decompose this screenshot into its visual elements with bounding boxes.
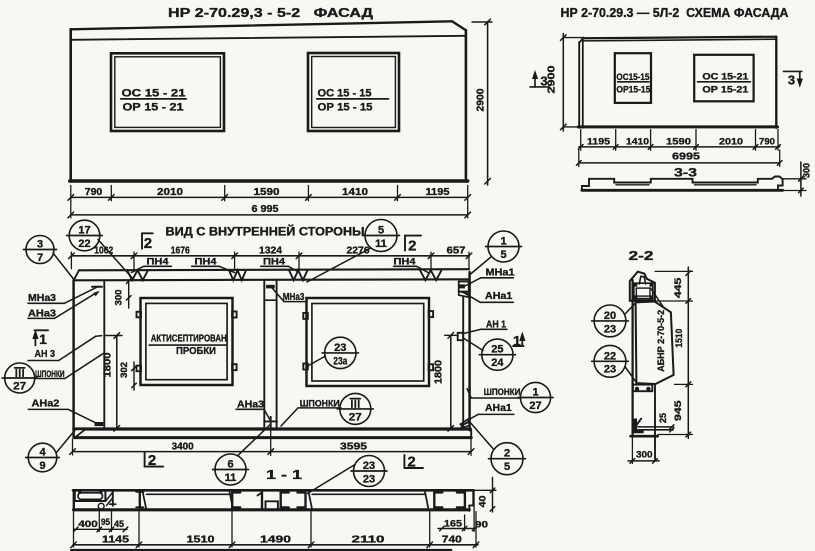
svg-text:1410: 1410 — [626, 136, 649, 147]
svg-text:1324: 1324 — [259, 245, 282, 256]
svg-text:АНа1: АНа1 — [485, 403, 512, 414]
svg-text:2: 2 — [148, 452, 156, 469]
svg-text:ОС 15 - 15: ОС 15 - 15 — [318, 88, 372, 100]
svg-text:1195: 1195 — [426, 187, 450, 198]
svg-text:302: 302 — [119, 362, 130, 378]
svg-text:3: 3 — [37, 239, 43, 251]
svg-text:ШПОНКИ: ШПОНКИ — [35, 369, 65, 379]
svg-text:790: 790 — [759, 136, 775, 147]
svg-text:23а: 23а — [333, 355, 348, 367]
svg-text:22: 22 — [78, 238, 90, 250]
svg-text:2900: 2900 — [476, 88, 487, 111]
svg-text:3400: 3400 — [172, 441, 194, 452]
svg-text:740: 740 — [442, 535, 463, 546]
svg-text:2: 2 — [408, 238, 416, 255]
svg-text:1: 1 — [532, 387, 538, 399]
svg-text:40: 40 — [478, 496, 488, 508]
svg-text:1: 1 — [39, 331, 47, 347]
svg-text:27: 27 — [529, 400, 541, 412]
svg-text:6: 6 — [227, 459, 233, 471]
svg-text:2110: 2110 — [352, 535, 386, 546]
svg-text:790: 790 — [85, 187, 103, 198]
svg-text:1800: 1800 — [433, 360, 444, 384]
svg-text:27: 27 — [349, 411, 362, 423]
svg-text:11: 11 — [375, 238, 387, 250]
svg-text:3595: 3595 — [340, 441, 368, 452]
svg-text:ПРОБКИ: ПРОБКИ — [176, 346, 216, 357]
svg-text:6995: 6995 — [672, 152, 701, 163]
svg-text:1490: 1490 — [260, 535, 292, 546]
svg-text:5: 5 — [500, 249, 506, 261]
svg-text:АКТИСЕПТИРОВАН: АКТИСЕПТИРОВАН — [151, 334, 227, 345]
svg-text:ОС15-15: ОС15-15 — [616, 72, 649, 82]
svg-text:20: 20 — [604, 310, 616, 322]
svg-text:ШПОНКИ: ШПОНКИ — [484, 387, 521, 397]
svg-text:3-3: 3-3 — [674, 166, 697, 180]
svg-text:МНа3: МНа3 — [28, 293, 56, 304]
svg-text:23: 23 — [604, 323, 616, 335]
svg-text:945: 945 — [673, 400, 684, 421]
svg-text:ВИД С ВНУТРЕННЕЙ СТОРОНЫ: ВИД С ВНУТРЕННЕЙ СТОРОНЫ — [166, 226, 365, 239]
svg-text:23: 23 — [604, 364, 616, 376]
svg-text:АБНР 2-70-5-2: АБНР 2-70-5-2 — [656, 310, 666, 372]
svg-text:2: 2 — [407, 454, 415, 471]
svg-text:2010: 2010 — [157, 187, 184, 198]
svg-text:95: 95 — [101, 517, 111, 528]
svg-text:23: 23 — [363, 473, 375, 485]
svg-text:2900: 2900 — [547, 65, 558, 94]
svg-text:АН 3: АН 3 — [35, 349, 56, 360]
svg-text:22: 22 — [604, 350, 616, 362]
svg-text:1800: 1800 — [103, 352, 114, 377]
svg-text:23: 23 — [334, 342, 346, 354]
svg-text:25: 25 — [491, 344, 503, 356]
svg-text:ОР 15 - 15: ОР 15 - 15 — [318, 102, 373, 114]
svg-text:400: 400 — [78, 519, 98, 530]
svg-text:45: 45 — [114, 519, 125, 530]
svg-text:2: 2 — [144, 235, 152, 252]
svg-text:АНа2: АНа2 — [32, 399, 60, 410]
svg-text:1510: 1510 — [187, 535, 216, 546]
svg-text:1590: 1590 — [254, 187, 281, 198]
svg-text:3: 3 — [788, 73, 795, 88]
svg-text:4: 4 — [39, 447, 46, 459]
svg-text:17: 17 — [78, 225, 90, 237]
svg-text:300: 300 — [636, 450, 653, 461]
svg-text:2: 2 — [504, 448, 510, 460]
svg-text:5: 5 — [504, 461, 510, 473]
svg-text:24: 24 — [491, 357, 504, 369]
svg-text:2010: 2010 — [719, 136, 743, 147]
svg-text:ОР 15-21: ОР 15-21 — [702, 84, 748, 94]
svg-text:90: 90 — [475, 520, 488, 531]
svg-text:7: 7 — [37, 252, 43, 264]
svg-text:23: 23 — [363, 460, 375, 472]
svg-text:27: 27 — [13, 380, 26, 392]
svg-text:11: 11 — [225, 472, 237, 484]
svg-text:1590: 1590 — [666, 136, 691, 147]
svg-text:1 - 1: 1 - 1 — [266, 467, 302, 482]
svg-text:НР 2-70.29,3 - 5-2 ФАСАД: НР 2-70.29,3 - 5-2 ФАСАД — [168, 5, 374, 20]
svg-text:300: 300 — [114, 290, 125, 306]
svg-text:1410: 1410 — [342, 187, 369, 198]
svg-text:ОС 15-21: ОС 15-21 — [702, 71, 748, 81]
svg-text:1: 1 — [500, 236, 506, 248]
svg-text:25: 25 — [658, 413, 668, 423]
svg-text:ОР 15 - 21: ОР 15 - 21 — [123, 102, 184, 114]
svg-text:ШПОНКИ: ШПОНКИ — [300, 398, 340, 408]
svg-text:НР 2-70.29.3 — 5Л-2 СХЕМА ФАС: НР 2-70.29.3 — 5Л-2 СХЕМА ФАСАДА — [561, 6, 789, 20]
svg-text:9: 9 — [39, 460, 45, 472]
svg-text:ОР15-15: ОР15-15 — [616, 84, 650, 94]
svg-text:АНа1: АНа1 — [485, 291, 513, 302]
svg-text:6 995: 6 995 — [252, 204, 279, 215]
svg-text:5: 5 — [378, 225, 384, 237]
svg-text:1510: 1510 — [674, 329, 685, 348]
svg-text:300: 300 — [802, 163, 813, 178]
svg-text:3: 3 — [540, 74, 547, 89]
svg-text:2-2: 2-2 — [629, 248, 654, 263]
svg-text:ОС 15 - 21: ОС 15 - 21 — [122, 88, 186, 100]
svg-text:1676: 1676 — [171, 245, 190, 256]
svg-text:657: 657 — [447, 245, 466, 256]
svg-text:1145: 1145 — [102, 535, 130, 546]
svg-text:165: 165 — [444, 519, 463, 530]
svg-text:445: 445 — [673, 277, 684, 298]
svg-text:1195: 1195 — [587, 136, 611, 147]
